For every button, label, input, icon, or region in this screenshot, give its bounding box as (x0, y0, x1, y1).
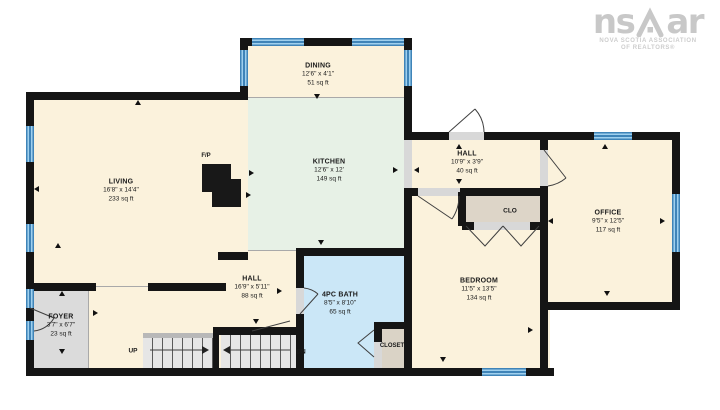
direction-arrow (414, 167, 419, 173)
window (26, 224, 34, 252)
window (240, 50, 248, 86)
direction-arrow (253, 319, 259, 324)
direction-arrow (34, 186, 39, 192)
logo-text-ar: ar (666, 8, 703, 37)
wall (26, 368, 412, 376)
stairs-down (221, 335, 296, 368)
window (26, 126, 34, 162)
window (26, 321, 34, 340)
wall (213, 327, 219, 376)
hall-exterior-door (449, 109, 484, 132)
wall (218, 252, 248, 260)
direction-arrow (246, 192, 251, 198)
direction-arrow (93, 310, 98, 316)
door-opening-clo (474, 222, 530, 230)
window (594, 132, 632, 140)
wall (404, 188, 412, 376)
direction-arrow (602, 144, 608, 149)
wall (213, 327, 304, 335)
logo-subtitle-line1: NOVA SCOTIA ASSOCIATION (582, 38, 714, 44)
room-label-kitchen: KITCHEN 12'6" x 12' 149 sq ft (313, 158, 346, 185)
wall (374, 322, 382, 342)
direction-arrow (55, 243, 61, 248)
closet-label: CLOSET (380, 343, 404, 349)
door-opening-bedroom (418, 188, 460, 196)
direction-arrow (314, 94, 320, 99)
room-label-dining: DINING 12'6" x 4'1" 51 sq ft (302, 62, 334, 89)
direction-arrow (318, 240, 324, 245)
direction-arrow (59, 291, 65, 296)
direction-arrow (604, 291, 610, 296)
opening-line-kitchen-hall (248, 250, 296, 251)
logo-subtitle-line2: OF REALTORS® (582, 45, 714, 51)
direction-arrow (660, 218, 665, 224)
wall (148, 283, 226, 291)
room-label-hall-lower: HALL 16'9" x 5'11" 88 sq ft (234, 275, 269, 302)
nsar-logo-wordmark: ns ar (582, 6, 714, 37)
room-label-bedroom: BEDROOM 11'5" x 13'5" 134 sq ft (460, 277, 498, 304)
clo-label: CLO (503, 208, 517, 215)
wall (26, 283, 96, 291)
direction-arrow (456, 144, 462, 149)
wall (544, 302, 680, 310)
window (26, 289, 34, 308)
wall (296, 314, 304, 376)
room-label-hall-upper: HALL 10'9" x 3'9" 40 sq ft (451, 150, 483, 177)
direction-arrow (440, 357, 446, 362)
door-opening-office (540, 150, 548, 186)
wall (460, 188, 548, 196)
direction-arrow (393, 167, 398, 173)
door-opening-hall-exterior (449, 132, 484, 140)
wall (404, 368, 554, 376)
window (672, 194, 680, 252)
stairs-up-rail (143, 333, 213, 338)
direction-arrow (528, 327, 533, 333)
direction-arrow (548, 218, 553, 224)
wall (296, 250, 304, 288)
window (352, 38, 404, 46)
wall (540, 186, 548, 376)
wall (296, 248, 412, 256)
logo-house-icon (635, 6, 665, 37)
room-label-foyer: FOYER 3'7" x 6'7" 23 sq ft (47, 313, 75, 340)
logo-text-ns: ns (593, 8, 634, 37)
room-label-office: OFFICE 9'5" x 12'5" 117 sq ft (592, 209, 624, 236)
opening-line-dining-kitchen (248, 97, 404, 98)
direction-arrow (249, 170, 254, 176)
nsar-logo: ns ar NOVA SCOTIA ASSOCIATION OF REALTOR… (582, 6, 714, 51)
wall (484, 132, 680, 140)
opening-line-living-hall (96, 286, 148, 287)
door-opening-kitchen-hall (404, 140, 412, 188)
window (252, 38, 304, 46)
door-opening-bath (296, 288, 304, 314)
direction-arrow (135, 100, 141, 105)
wall (458, 192, 466, 226)
direction-arrow (277, 288, 282, 294)
opening-line-foyer-hall (88, 289, 89, 370)
room-fill-bedroom-lower (408, 306, 550, 372)
floor-plan: LIVING 16'8" x 14'4" 233 sq ft DINING 12… (0, 0, 720, 410)
direction-arrow (59, 349, 65, 354)
stairs-up (143, 333, 213, 368)
fireplace-label: F/P (201, 153, 210, 159)
room-fill-closet (380, 328, 406, 370)
window (482, 368, 526, 376)
direction-arrow (456, 179, 462, 184)
stairs-down-label: DN (296, 349, 305, 356)
wall (26, 92, 248, 100)
room-label-bath: 4PC BATH 8'5" x 8'10" 65 sq ft (322, 291, 358, 318)
room-label-living: LIVING 16'8" x 14'4" 233 sq ft (103, 178, 139, 205)
window (404, 50, 412, 86)
wall (540, 132, 548, 150)
stairs-up-label: UP (128, 348, 137, 355)
